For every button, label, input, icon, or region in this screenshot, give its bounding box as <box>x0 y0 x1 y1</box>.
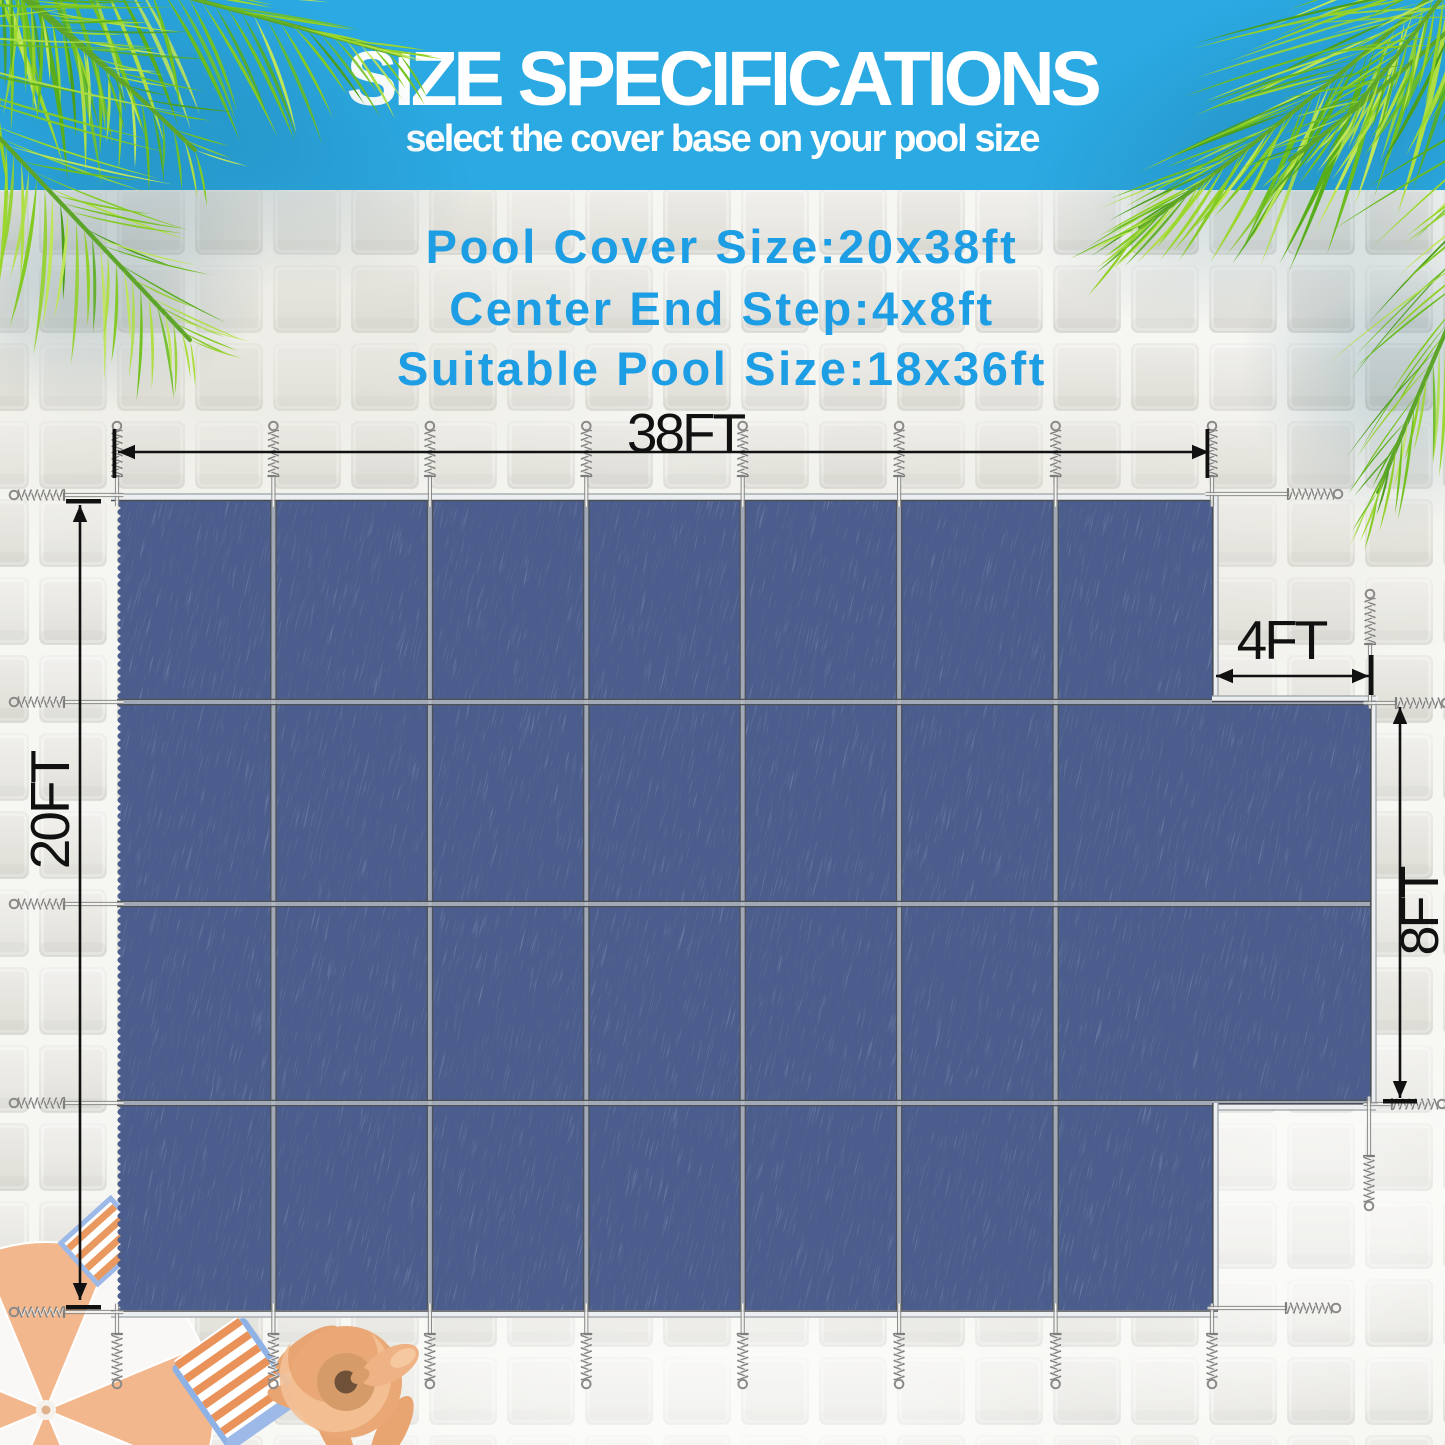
svg-text:Suitable Pool Size:18x36ft: Suitable Pool Size:18x36ft <box>397 342 1047 395</box>
svg-text:38FT: 38FT <box>627 402 746 464</box>
svg-text:4FT: 4FT <box>1237 609 1328 671</box>
svg-text:SIZE SPECIFICATIONS: SIZE SPECIFICATIONS <box>346 36 1099 122</box>
svg-text:select the cover base on your: select the cover base on your pool size <box>405 118 1039 160</box>
svg-text:8FT: 8FT <box>1390 866 1445 955</box>
svg-text:Pool Cover Size:20x38ft: Pool Cover Size:20x38ft <box>426 220 1019 273</box>
svg-text:20FT: 20FT <box>19 750 81 869</box>
svg-text:Center End Step:4x8ft: Center End Step:4x8ft <box>449 282 995 335</box>
